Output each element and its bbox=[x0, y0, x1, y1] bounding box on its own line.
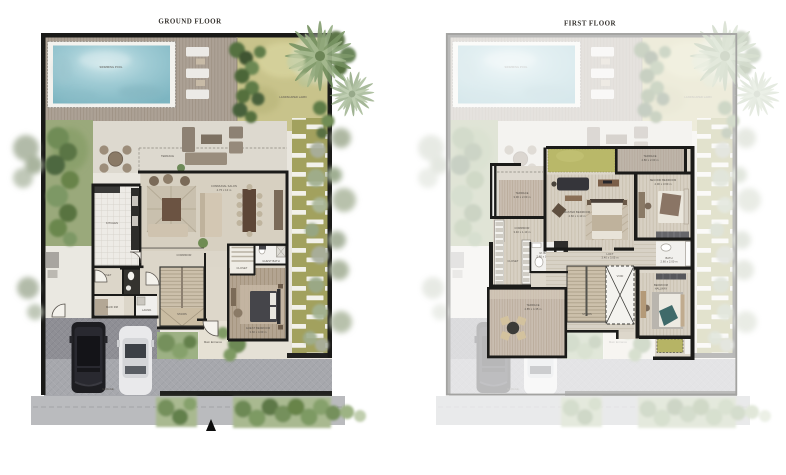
svg-text:LANDSCAPED LAWN: LANDSCAPED LAWN bbox=[279, 95, 306, 99]
svg-text:LOFT: LOFT bbox=[606, 252, 613, 256]
svg-text:4.75 x 10 m: 4.75 x 10 m bbox=[217, 188, 232, 192]
svg-text:3.00 x 2.00 m: 3.00 x 2.00 m bbox=[513, 195, 530, 199]
svg-text:SWIMMING POOL: SWIMMING POOL bbox=[99, 65, 123, 69]
svg-text:BEDROOM: BEDROOM bbox=[654, 283, 668, 287]
svg-text:TERRACE: TERRACE bbox=[161, 154, 174, 158]
svg-text:FIRST FLOOR: FIRST FLOOR bbox=[564, 20, 617, 28]
svg-text:TERRACE: TERRACE bbox=[515, 191, 528, 195]
svg-text:MAID RM: MAID RM bbox=[106, 305, 118, 309]
svg-text:GUEST BEDROOM: GUEST BEDROOM bbox=[246, 326, 270, 330]
svg-text:VOID: VOID bbox=[617, 274, 624, 278]
svg-text:CLOSET: CLOSET bbox=[508, 259, 519, 263]
svg-text:TERRACE: TERRACE bbox=[526, 303, 539, 307]
svg-text:BATH: BATH bbox=[665, 256, 672, 260]
svg-text:CORRIDOR: CORRIDOR bbox=[177, 253, 192, 257]
svg-text:HALLWAY: HALLWAY bbox=[655, 287, 668, 291]
svg-text:STAIRS: STAIRS bbox=[582, 312, 592, 316]
svg-text:2.60 x 2.00 m: 2.60 x 2.00 m bbox=[660, 260, 677, 264]
svg-text:Main Entrance: Main Entrance bbox=[204, 340, 222, 344]
svg-text:TERRACE: TERRACE bbox=[643, 154, 656, 158]
svg-text:4.00 x 3.60 m: 4.00 x 3.60 m bbox=[654, 182, 671, 186]
svg-text:3.60 x 4.00 m: 3.60 x 4.00 m bbox=[249, 330, 266, 334]
svg-text:4.80 x 2.00 m: 4.80 x 2.00 m bbox=[641, 158, 658, 162]
svg-text:KITCHEN: KITCHEN bbox=[106, 221, 118, 225]
svg-text:3.40 x 1.10 m: 3.40 x 1.10 m bbox=[513, 230, 530, 234]
svg-text:COMMUNAL SALON: COMMUNAL SALON bbox=[211, 184, 237, 188]
svg-text:GROUND FLOOR: GROUND FLOOR bbox=[158, 18, 222, 26]
svg-text:4.85 x 4.35 m: 4.85 x 4.35 m bbox=[524, 307, 541, 311]
svg-text:GUEST BATH: GUEST BATH bbox=[262, 259, 279, 263]
svg-text:CORRIDOR: CORRIDOR bbox=[515, 226, 530, 230]
svg-text:SECOND BEDROOM: SECOND BEDROOM bbox=[650, 178, 677, 182]
svg-text:4.60 x 4.10 m: 4.60 x 4.10 m bbox=[568, 214, 585, 218]
svg-text:3.40 x 3.05 m: 3.40 x 3.05 m bbox=[601, 256, 618, 260]
svg-text:CLOSET: CLOSET bbox=[237, 266, 248, 270]
svg-text:STAIRS: STAIRS bbox=[177, 312, 187, 316]
svg-text:MASTER BEDROOM: MASTER BEDROOM bbox=[564, 210, 590, 214]
svg-text:LAUND.: LAUND. bbox=[142, 308, 152, 312]
svg-text:GARAGE: GARAGE bbox=[102, 387, 114, 391]
